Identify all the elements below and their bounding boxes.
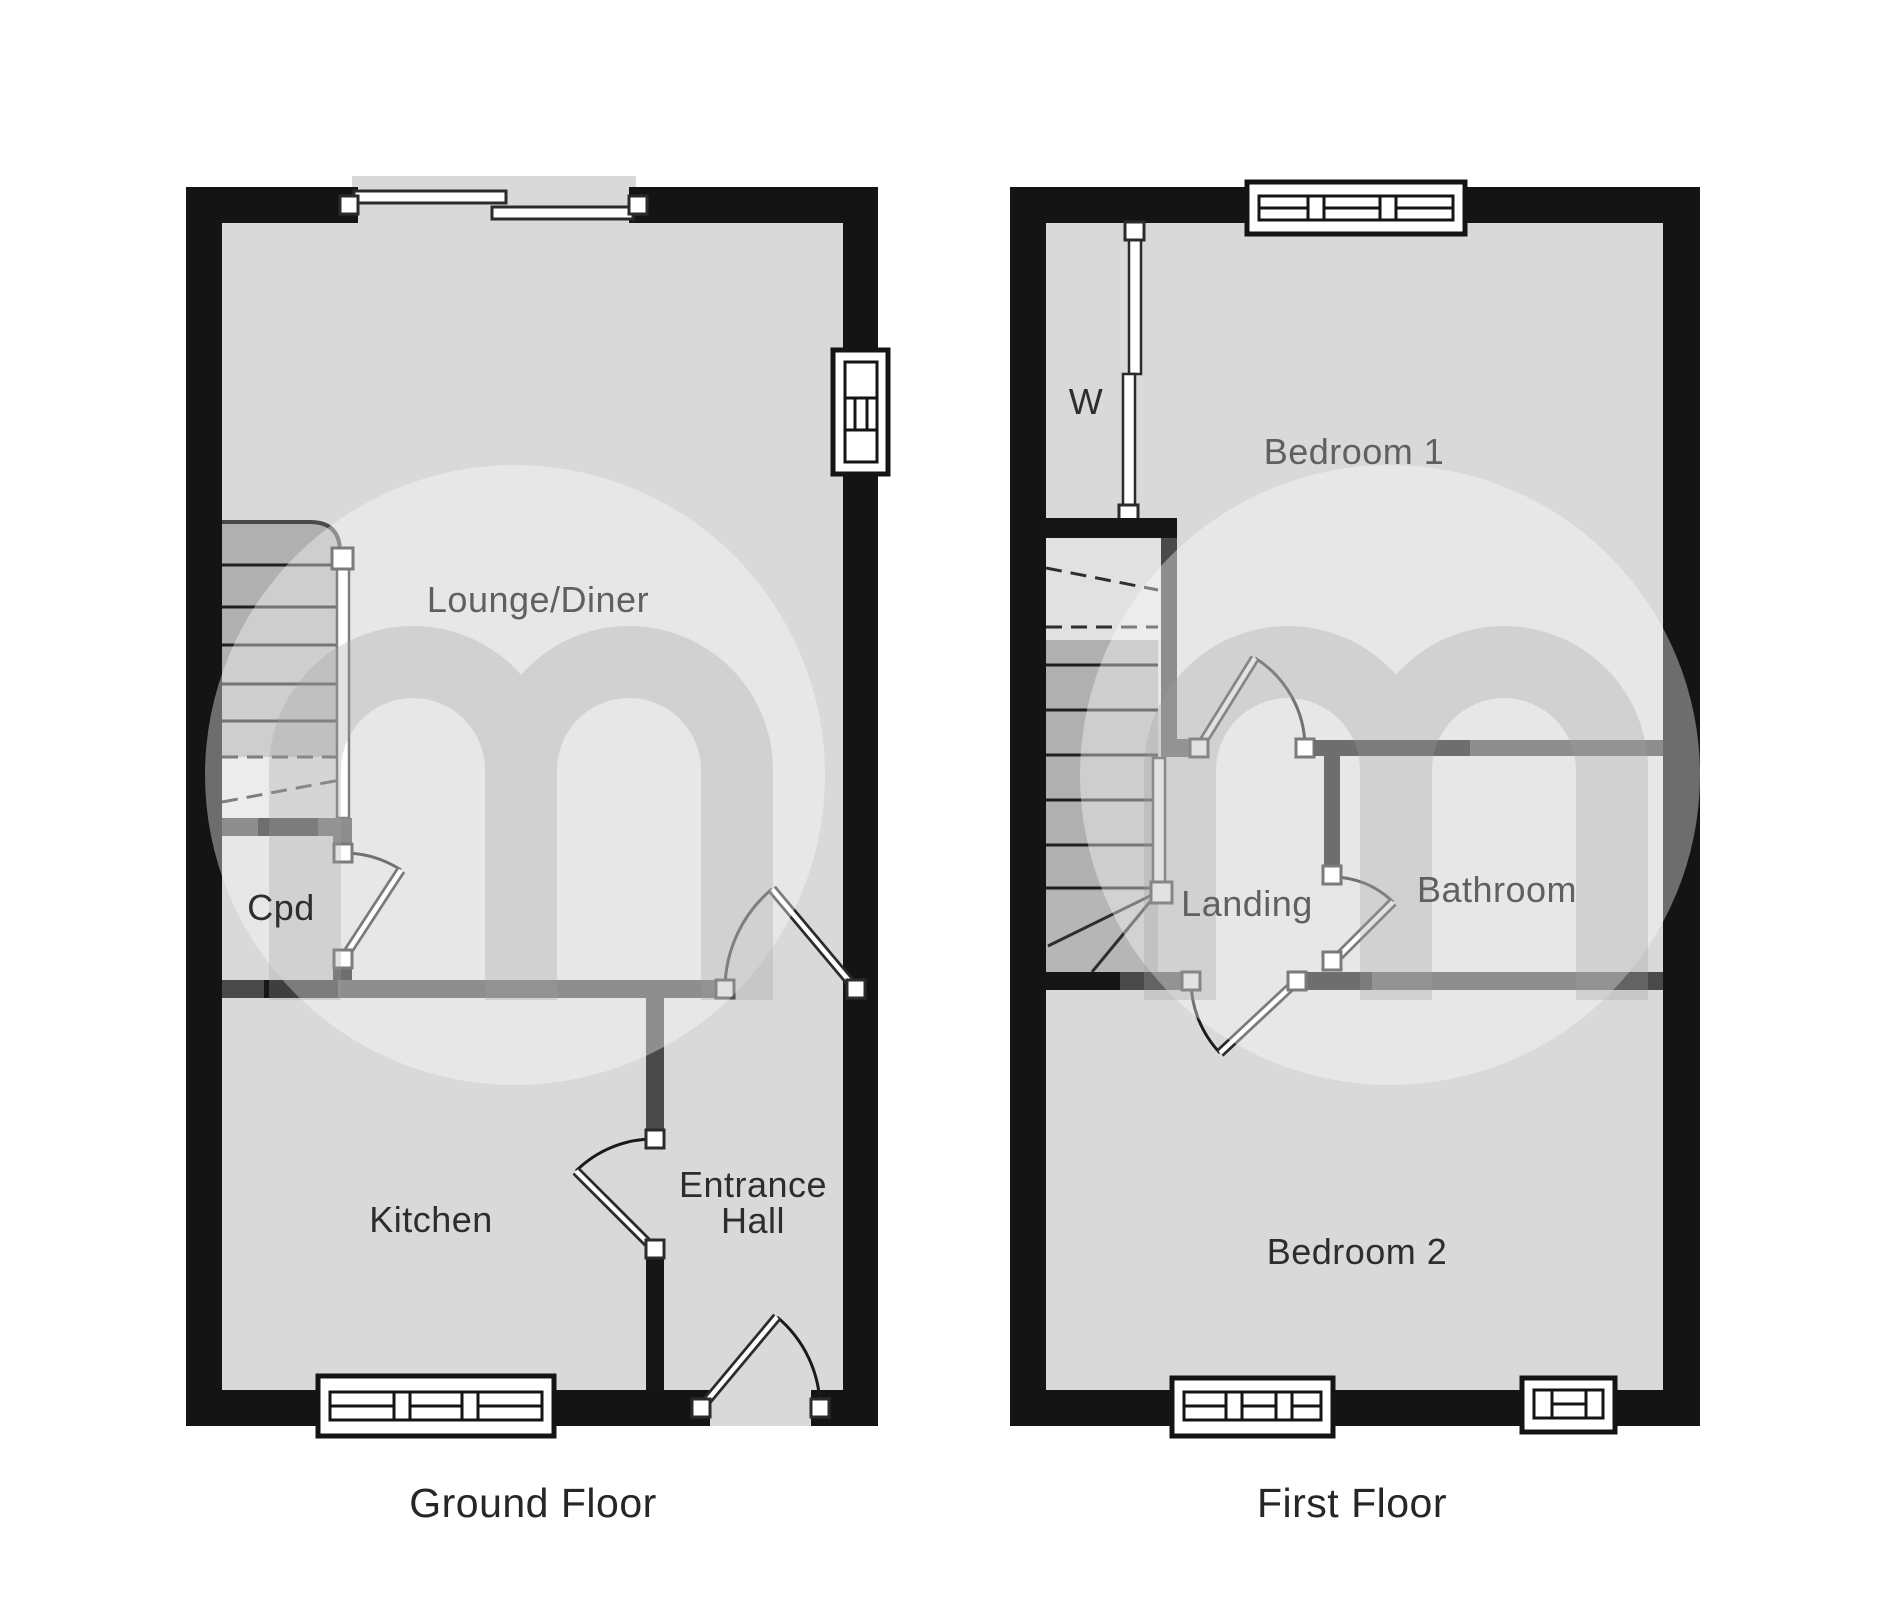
partition-post	[1125, 222, 1144, 240]
door-post	[646, 1130, 664, 1148]
caption-ground-floor: Ground Floor	[409, 1480, 657, 1526]
sliding-patio-door	[340, 176, 647, 223]
door-post	[811, 1399, 829, 1417]
bedroom2-window-right	[1522, 1378, 1615, 1432]
label-entrance-hall-line1: Entrance	[679, 1164, 827, 1205]
label-bedroom-2: Bedroom 2	[1267, 1231, 1448, 1272]
sliding-panel-left	[354, 191, 506, 203]
label-wardrobe: W	[1069, 381, 1103, 422]
bedroom2-window-left	[1172, 1378, 1333, 1436]
label-entrance-hall-line2: Hall	[721, 1200, 785, 1241]
door-post	[692, 1399, 710, 1417]
patio-threshold	[352, 176, 636, 187]
caption-first-floor: First Floor	[1257, 1480, 1447, 1526]
hall-divider-wall-lower	[646, 1258, 664, 1390]
label-kitchen: Kitchen	[369, 1199, 493, 1240]
floorplan-page: Lounge/Diner Cpd Kitchen Entrance Hall G…	[0, 0, 1883, 1613]
door-post	[629, 196, 647, 214]
door-post	[847, 980, 865, 998]
lounge-side-window	[833, 350, 888, 474]
entrance-opening	[710, 1390, 811, 1426]
kitchen-window	[318, 1376, 554, 1436]
watermark-first	[1080, 465, 1700, 1085]
label-landing: Landing	[1181, 883, 1313, 924]
label-bathroom: Bathroom	[1417, 869, 1577, 910]
label-bedroom-1: Bedroom 1	[1264, 431, 1445, 472]
door-post	[646, 1240, 664, 1258]
floorplan-canvas: Lounge/Diner Cpd Kitchen Entrance Hall G…	[0, 0, 1883, 1613]
label-cupboard: Cpd	[247, 887, 315, 928]
door-post	[340, 196, 358, 214]
watermark-ground	[205, 465, 825, 1085]
label-lounge-diner: Lounge/Diner	[427, 579, 649, 620]
bedroom1-window	[1247, 182, 1465, 234]
sliding-panel-right	[492, 207, 633, 219]
